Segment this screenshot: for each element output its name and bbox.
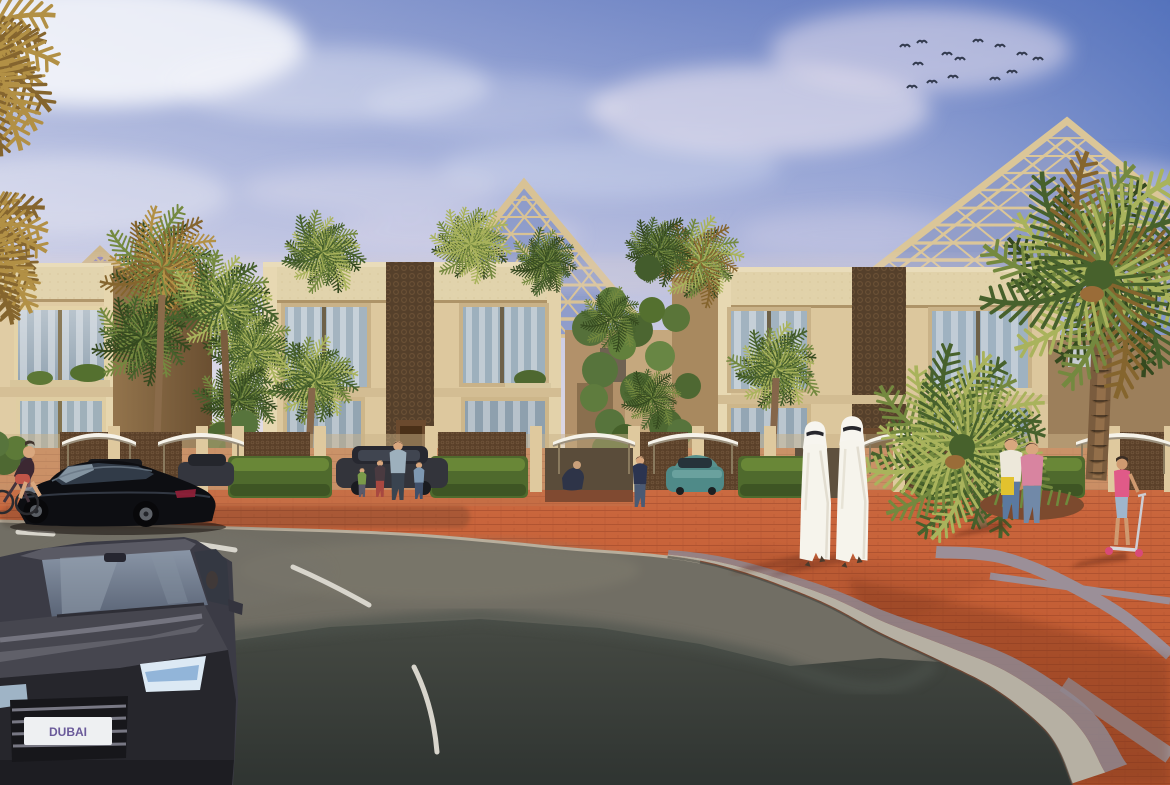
svg-text:DUBAI: DUBAI	[49, 725, 87, 739]
